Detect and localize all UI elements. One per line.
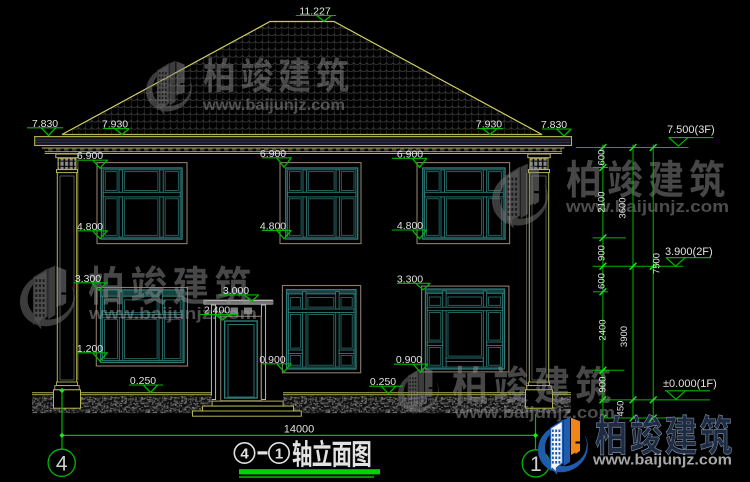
svg-text:3.000: 3.000 <box>223 285 249 297</box>
svg-text:4.800: 4.800 <box>77 221 103 233</box>
svg-text:7.830: 7.830 <box>541 119 567 131</box>
svg-text:4: 4 <box>240 445 249 462</box>
svg-text:1.200: 1.200 <box>77 343 103 355</box>
svg-text:www.baijunjz.com: www.baijunjz.com <box>202 97 345 114</box>
svg-text:6.900: 6.900 <box>77 150 103 162</box>
svg-text:7.930: 7.930 <box>476 119 502 131</box>
svg-text:3.900(2F): 3.900(2F) <box>665 246 713 258</box>
svg-text:4.800: 4.800 <box>397 220 423 232</box>
svg-text:4: 4 <box>56 452 68 475</box>
svg-text:www.baijunjz.com: www.baijunjz.com <box>454 404 615 422</box>
svg-text:0.900: 0.900 <box>259 354 285 366</box>
svg-text:2.400: 2.400 <box>204 305 230 317</box>
svg-text:0.900: 0.900 <box>396 354 422 366</box>
svg-text:11.227: 11.227 <box>299 6 330 18</box>
svg-text:900: 900 <box>597 245 608 261</box>
svg-text:14000: 14000 <box>284 424 315 436</box>
svg-text:3900: 3900 <box>619 326 630 347</box>
svg-text:www.baijunjz.com: www.baijunjz.com <box>565 198 729 216</box>
svg-text:7.830: 7.830 <box>32 118 58 130</box>
svg-text:7.930: 7.930 <box>102 119 128 131</box>
svg-text:0.250: 0.250 <box>370 376 396 388</box>
svg-text:3.300: 3.300 <box>75 273 101 285</box>
svg-text:±0.000(1F): ±0.000(1F) <box>663 378 717 390</box>
svg-text:3600: 3600 <box>618 197 629 218</box>
svg-text:www.baijunjz.com: www.baijunjz.com <box>88 305 257 323</box>
svg-text:1: 1 <box>275 445 283 462</box>
svg-text:0.250: 0.250 <box>130 375 156 387</box>
svg-text:www.baijunjz.com: www.baijunjz.com <box>592 453 732 469</box>
svg-text:900: 900 <box>598 377 609 393</box>
svg-text:7.500(3F): 7.500(3F) <box>667 124 715 136</box>
svg-text:2100: 2100 <box>597 191 608 212</box>
svg-text:4.800: 4.800 <box>260 220 286 232</box>
svg-text:600: 600 <box>597 273 608 289</box>
svg-text:450: 450 <box>616 401 627 417</box>
svg-text:6.900: 6.900 <box>397 148 423 160</box>
svg-text:3.300: 3.300 <box>397 273 423 285</box>
svg-text:600: 600 <box>597 150 608 166</box>
svg-text:6.900: 6.900 <box>260 148 286 160</box>
svg-text:2400: 2400 <box>598 319 609 340</box>
svg-text:7500: 7500 <box>652 253 663 274</box>
